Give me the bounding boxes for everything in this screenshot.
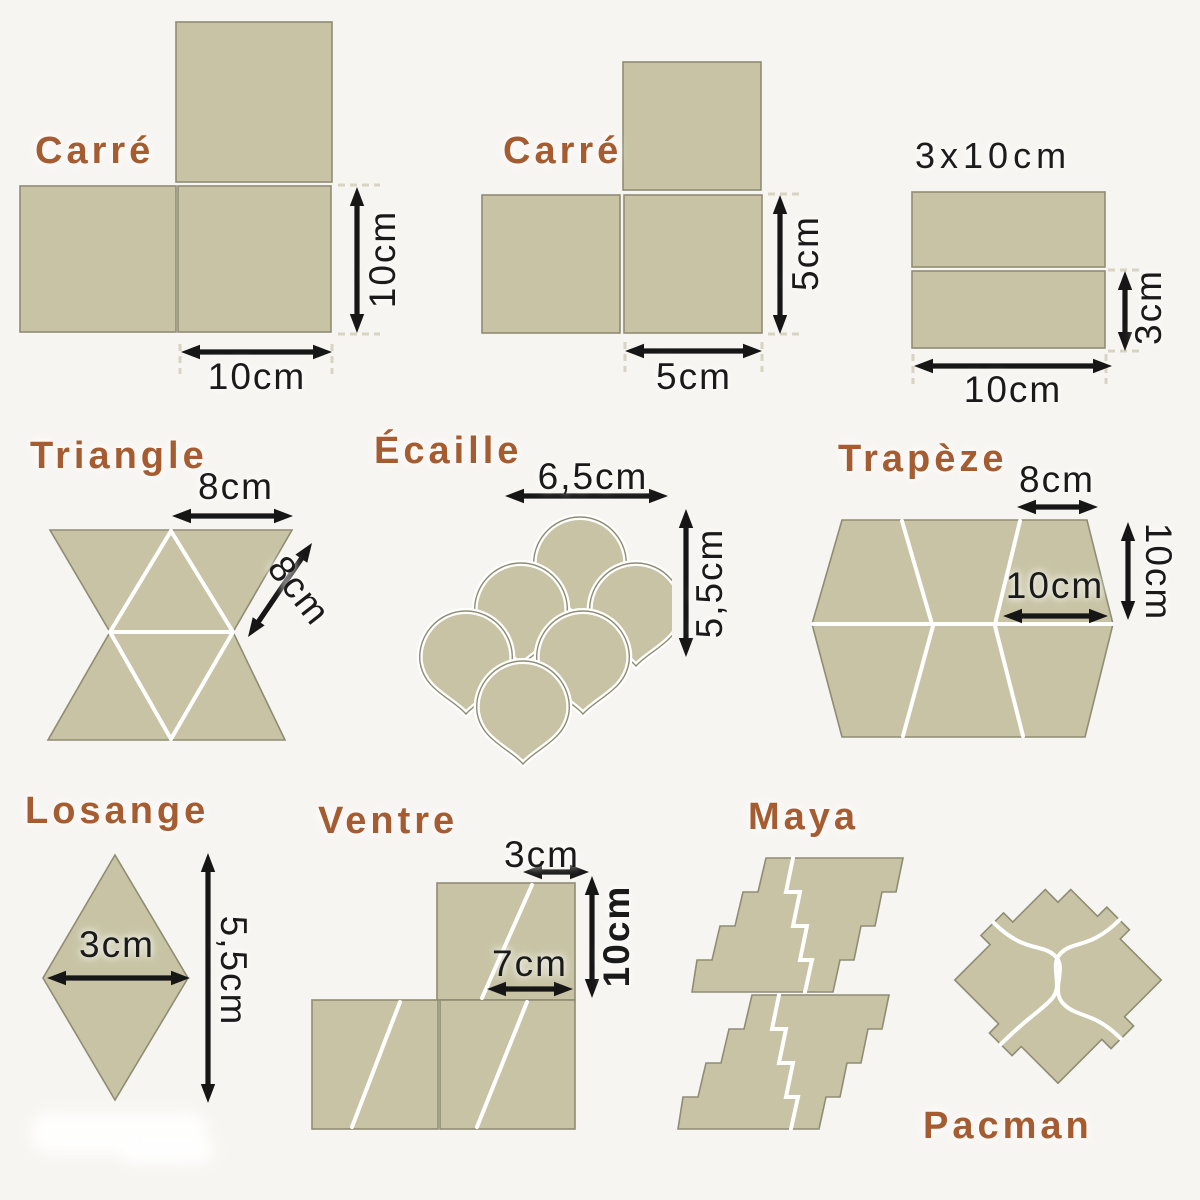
dim-label-losange-width: 3cm	[79, 924, 155, 966]
dim-label-carre5-width: 5cm	[656, 356, 732, 398]
dim-label-ecaille-height: 5,5cm	[689, 528, 731, 639]
dim-label-triangle-top: 8cm	[198, 466, 274, 508]
dim-arrow-triangle-top	[172, 509, 293, 523]
dim-label-carre10-height: 10cm	[362, 210, 404, 308]
dim-label-carre10-width: 10cm	[208, 356, 306, 398]
dim-label-ventre-inner: 7cm	[492, 943, 568, 985]
ventre-tiles	[312, 865, 599, 1129]
dim-label-3x10-height: 3cm	[1128, 269, 1170, 345]
section-title-carre10: Carré	[35, 130, 154, 173]
section-title-carre5: Carré	[503, 130, 622, 173]
dim-label-ventre-height: 10cm	[596, 885, 638, 988]
dim-label-ventre-top: 3cm	[504, 834, 580, 876]
triangle-tiles	[48, 509, 312, 740]
maya-tiles	[678, 858, 903, 1129]
section-title-trapeze: Trapèze	[838, 438, 1008, 481]
dim-label-trapeze-height: 10cm	[1137, 523, 1179, 621]
carre-10-tiles	[20, 22, 380, 374]
trapeze-tiles	[812, 500, 1135, 737]
dim-label-trapeze-inner: 10cm	[1006, 565, 1104, 607]
dim-label-carre5-height: 5cm	[785, 215, 827, 291]
section-title-maya: Maya	[748, 796, 859, 839]
erased-watermark	[120, 1138, 215, 1164]
section-title-ventre: Ventre	[318, 800, 458, 843]
pacman-tiles	[936, 858, 1179, 1101]
dim-arrow-trapeze-top	[1017, 500, 1098, 514]
section-title-ecaille: Écaille	[374, 430, 522, 473]
rect-3x10-tiles	[912, 192, 1142, 384]
dim-arrow-trapeze-height	[1121, 522, 1135, 620]
carre-5-tiles	[482, 62, 800, 372]
tile-shapes-sheet: Carré Carré 3x10cm Triangle Écaille Trap…	[0, 0, 1200, 1200]
losange-tile	[43, 853, 215, 1103]
dim-label-3x10-width: 10cm	[964, 369, 1062, 411]
section-title-losange: Losange	[25, 790, 209, 833]
section-title-3x10: 3x10cm	[915, 135, 1071, 177]
dim-label-losange-height: 5,5cm	[212, 916, 254, 1027]
section-title-pacman: Pacman	[923, 1105, 1093, 1148]
dim-label-trapeze-top: 8cm	[1019, 459, 1095, 501]
dim-label-ecaille-width: 6,5cm	[538, 456, 649, 498]
section-title-triangle: Triangle	[30, 435, 208, 478]
ecaille-tiles	[420, 489, 693, 764]
